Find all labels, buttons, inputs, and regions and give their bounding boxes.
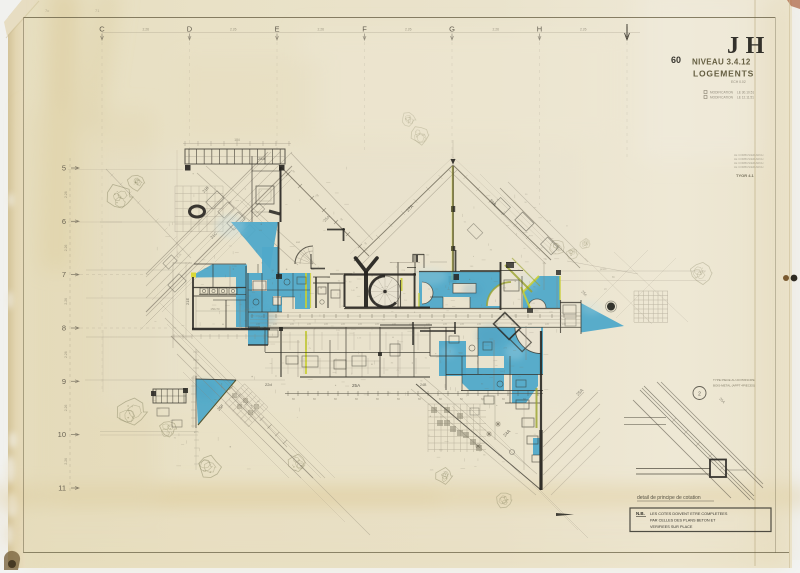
svg-text:21E: 21E [185,298,190,305]
svg-text:226: 226 [511,323,516,326]
svg-text:226: 226 [375,323,380,326]
svg-text:2: 2 [698,392,701,398]
svg-text:LE 12.11.51: LE 12.11.51 [737,96,754,100]
svg-text:10: 10 [58,430,66,439]
svg-text:2.26: 2.26 [64,298,68,305]
svg-text:226: 226 [477,323,482,326]
svg-text:5: 5 [62,164,66,173]
svg-text:226: 226 [341,323,346,326]
svg-text:E: E [274,25,279,34]
svg-text:25A: 25A [352,383,361,388]
svg-text:2.26: 2.26 [492,28,499,32]
svg-text:2.26: 2.26 [317,28,324,32]
svg-text:LES COTES DOIVENT ETRE COMPLET: LES COTES DOIVENT ETRE COMPLETEES [650,512,728,516]
svg-text:7c: 7c [45,8,49,13]
svg-text:8: 8 [62,324,66,333]
svg-text:ECH 0.02: ECH 0.02 [731,80,746,84]
svg-text:226: 226 [290,323,295,326]
svg-text:NIVEAU 3.4.12: NIVEAU 3.4.12 [692,58,751,67]
svg-text:2.26: 2.26 [230,28,237,32]
svg-text:184: 184 [234,138,240,142]
svg-text:226: 226 [256,323,261,326]
svg-text:226: 226 [358,323,363,326]
svg-text:11: 11 [58,484,66,493]
svg-text:2.26: 2.26 [142,28,149,32]
svg-text:LOGEMENTS: LOGEMENTS [693,69,754,79]
svg-text:H: H [537,25,542,34]
svg-text:24B: 24B [420,383,427,387]
svg-text:PAR CELLES DES PLANS BETON ET: PAR CELLES DES PLANS BETON ET [650,519,716,523]
svg-text:G: G [449,25,455,34]
svg-text:60: 60 [671,55,681,65]
svg-text:2.26: 2.26 [64,245,68,252]
svg-text:H: H [746,33,765,59]
svg-text:25A: 25A [258,156,265,161]
svg-text:9: 9 [62,377,66,386]
svg-text:226: 226 [528,323,533,326]
svg-text:jardin: jardin [599,267,607,271]
svg-text:MODIFICATION: MODIFICATION [710,96,734,100]
svg-text:2.26: 2.26 [64,351,68,358]
svg-text:150x70: 150x70 [210,307,220,311]
svg-text:LE 30.10.51: LE 30.10.51 [737,91,754,95]
svg-text:J: J [727,33,739,59]
svg-text:MODIFICATION: MODIFICATION [710,91,734,95]
svg-text:2.26: 2.26 [64,458,68,465]
svg-text:D: D [187,25,193,34]
svg-text:2.26: 2.26 [64,405,68,412]
svg-text:226: 226 [273,323,278,326]
svg-text:2.26: 2.26 [405,28,412,32]
svg-text:esc: esc [296,241,301,244]
svg-text:226: 226 [324,323,329,326]
svg-text:detail de principe de cotation: detail de principe de cotation [637,495,701,501]
svg-text:226: 226 [307,323,312,326]
svg-text:71: 71 [95,8,100,13]
svg-text:6: 6 [62,217,66,226]
svg-text:226: 226 [460,323,465,326]
svg-text:7: 7 [62,270,66,279]
svg-text:VERIFIEES SUR PLACE: VERIFIEES SUR PLACE [650,525,693,529]
svg-text:BOIS-METAL (APPT 4PIECES): BOIS-METAL (APPT 4PIECES) [713,384,755,388]
svg-text:226: 226 [545,323,550,326]
svg-text:TYPE PIECE AU 20 PRINCIPE: TYPE PIECE AU 20 PRINCIPE [713,378,755,382]
svg-text:TYOR 4.1: TYOR 4.1 [736,173,755,178]
svg-text:226: 226 [443,323,448,326]
svg-text:22d: 22d [265,382,272,387]
svg-text:226: 226 [562,323,567,326]
svg-text:226: 226 [494,323,499,326]
svg-text:LE CORBUSIER ARCH: LE CORBUSIER ARCH [734,165,763,169]
svg-text:2.26: 2.26 [580,28,587,32]
svg-text:2.26: 2.26 [64,191,68,198]
svg-text:F: F [362,25,367,34]
svg-text:C: C [99,25,105,34]
svg-text:N.B.: N.B. [636,511,645,516]
